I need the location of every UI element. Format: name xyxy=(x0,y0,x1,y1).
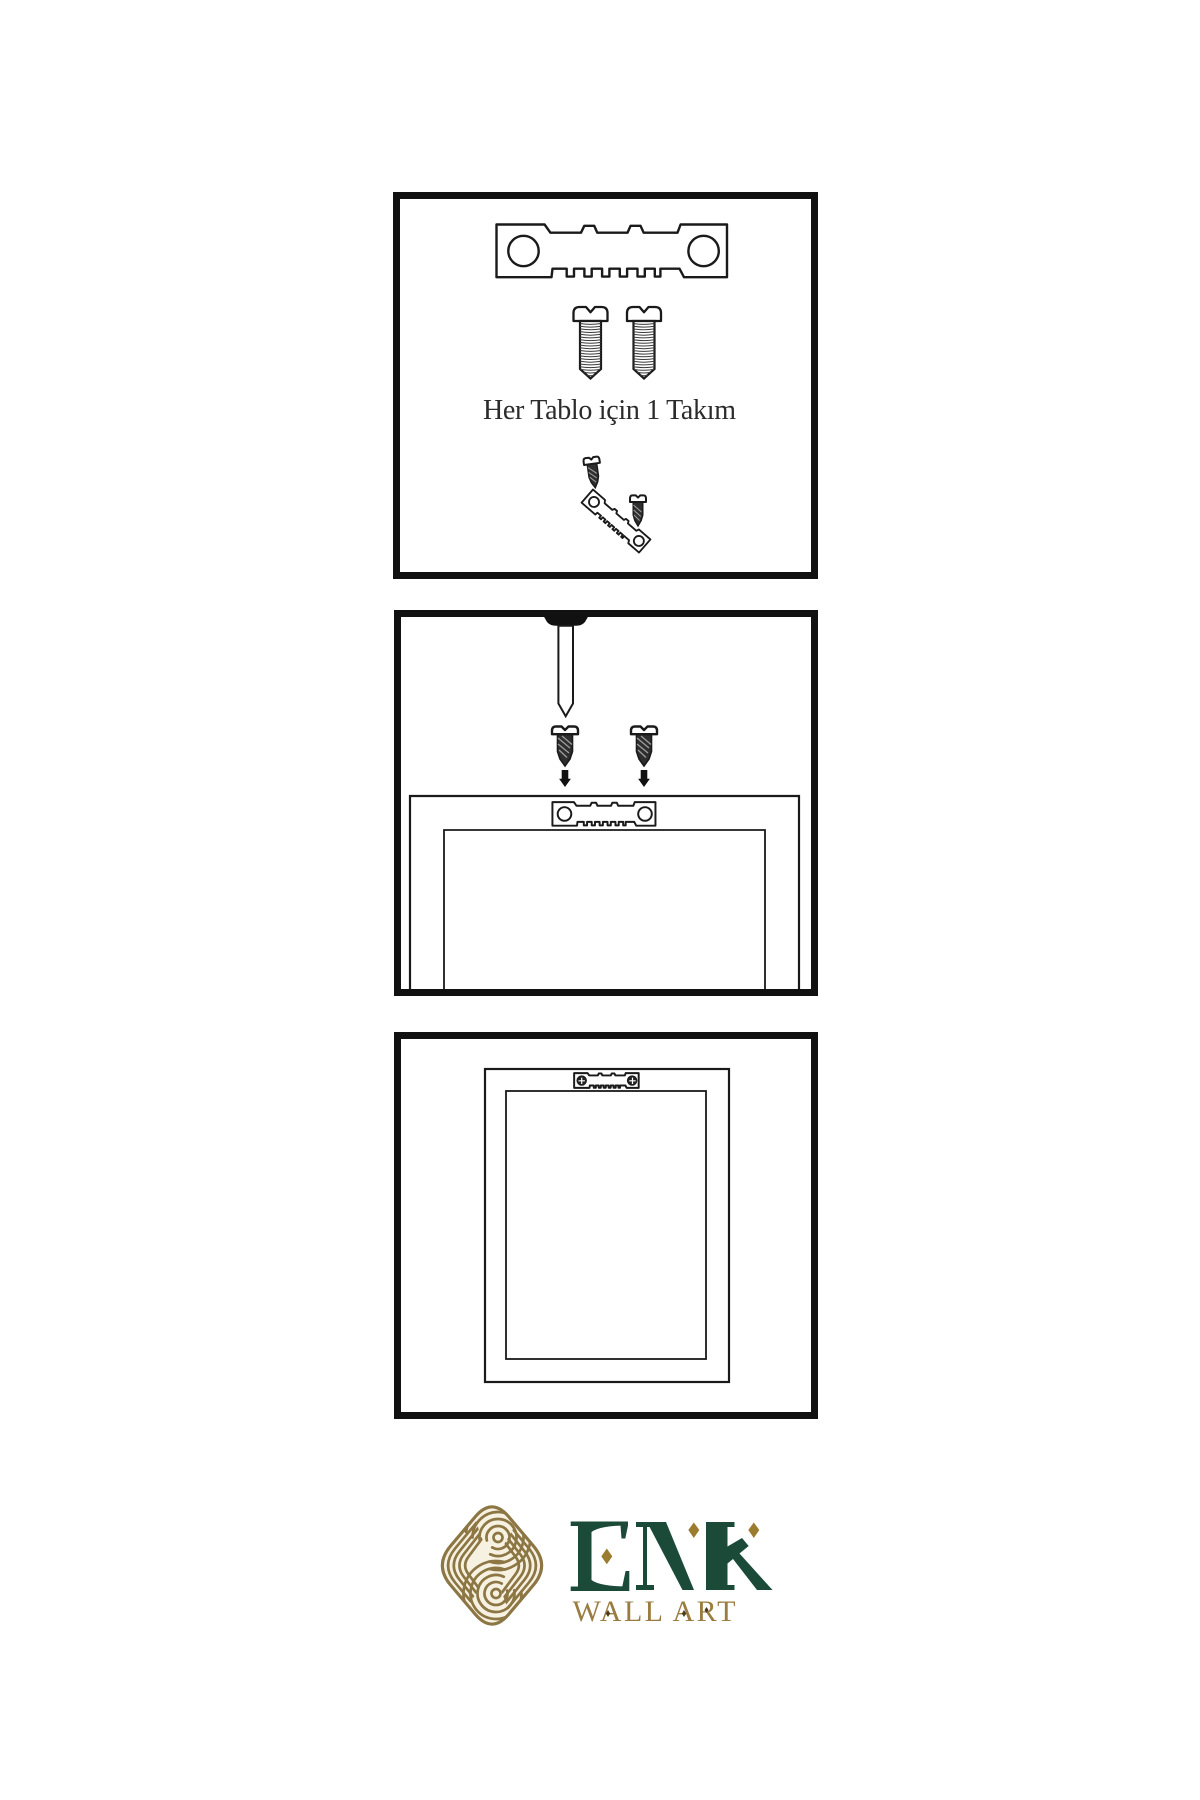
svg-text:Her Tablo için 1 Takım: Her Tablo için 1 Takım xyxy=(483,395,736,426)
svg-text:WALL ART: WALL ART xyxy=(573,1595,736,1628)
